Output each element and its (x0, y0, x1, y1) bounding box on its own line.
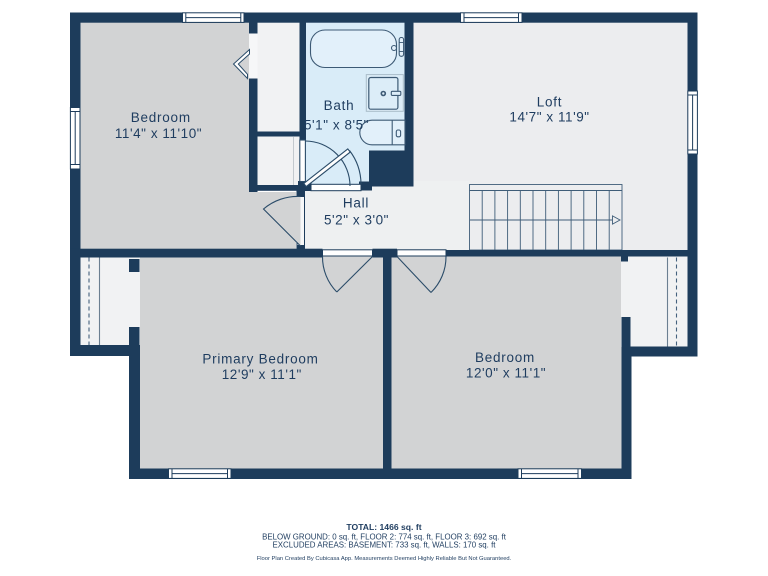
svg-text:TOTAL: 1466 sq. ft: TOTAL: 1466 sq. ft (346, 522, 421, 532)
svg-text:5'2" x 3'0": 5'2" x 3'0" (324, 213, 389, 228)
svg-text:Primary Bedroom: Primary Bedroom (202, 352, 318, 367)
svg-text:Bedroom: Bedroom (475, 350, 535, 365)
svg-text:5'1" x 8'5": 5'1" x 8'5" (304, 118, 369, 133)
svg-text:12'0" x 11'1": 12'0" x 11'1" (466, 366, 546, 381)
svg-text:Hall: Hall (343, 196, 369, 211)
svg-text:EXCLUDED AREAS: BASEMENT: 733: EXCLUDED AREAS: BASEMENT: 733 sq. ft, WA… (273, 541, 497, 550)
svg-text:11'4" x 11'10": 11'4" x 11'10" (115, 126, 202, 141)
svg-text:Bedroom: Bedroom (131, 110, 191, 125)
svg-text:14'7" x 11'9": 14'7" x 11'9" (509, 109, 589, 124)
svg-text:Bath: Bath (324, 98, 355, 113)
svg-text:12'9" x 11'1": 12'9" x 11'1" (222, 367, 302, 382)
svg-text:Loft: Loft (537, 95, 563, 110)
svg-text:Floor Plan Created By Cubicasa: Floor Plan Created By Cubicasa App. Meas… (257, 556, 512, 562)
